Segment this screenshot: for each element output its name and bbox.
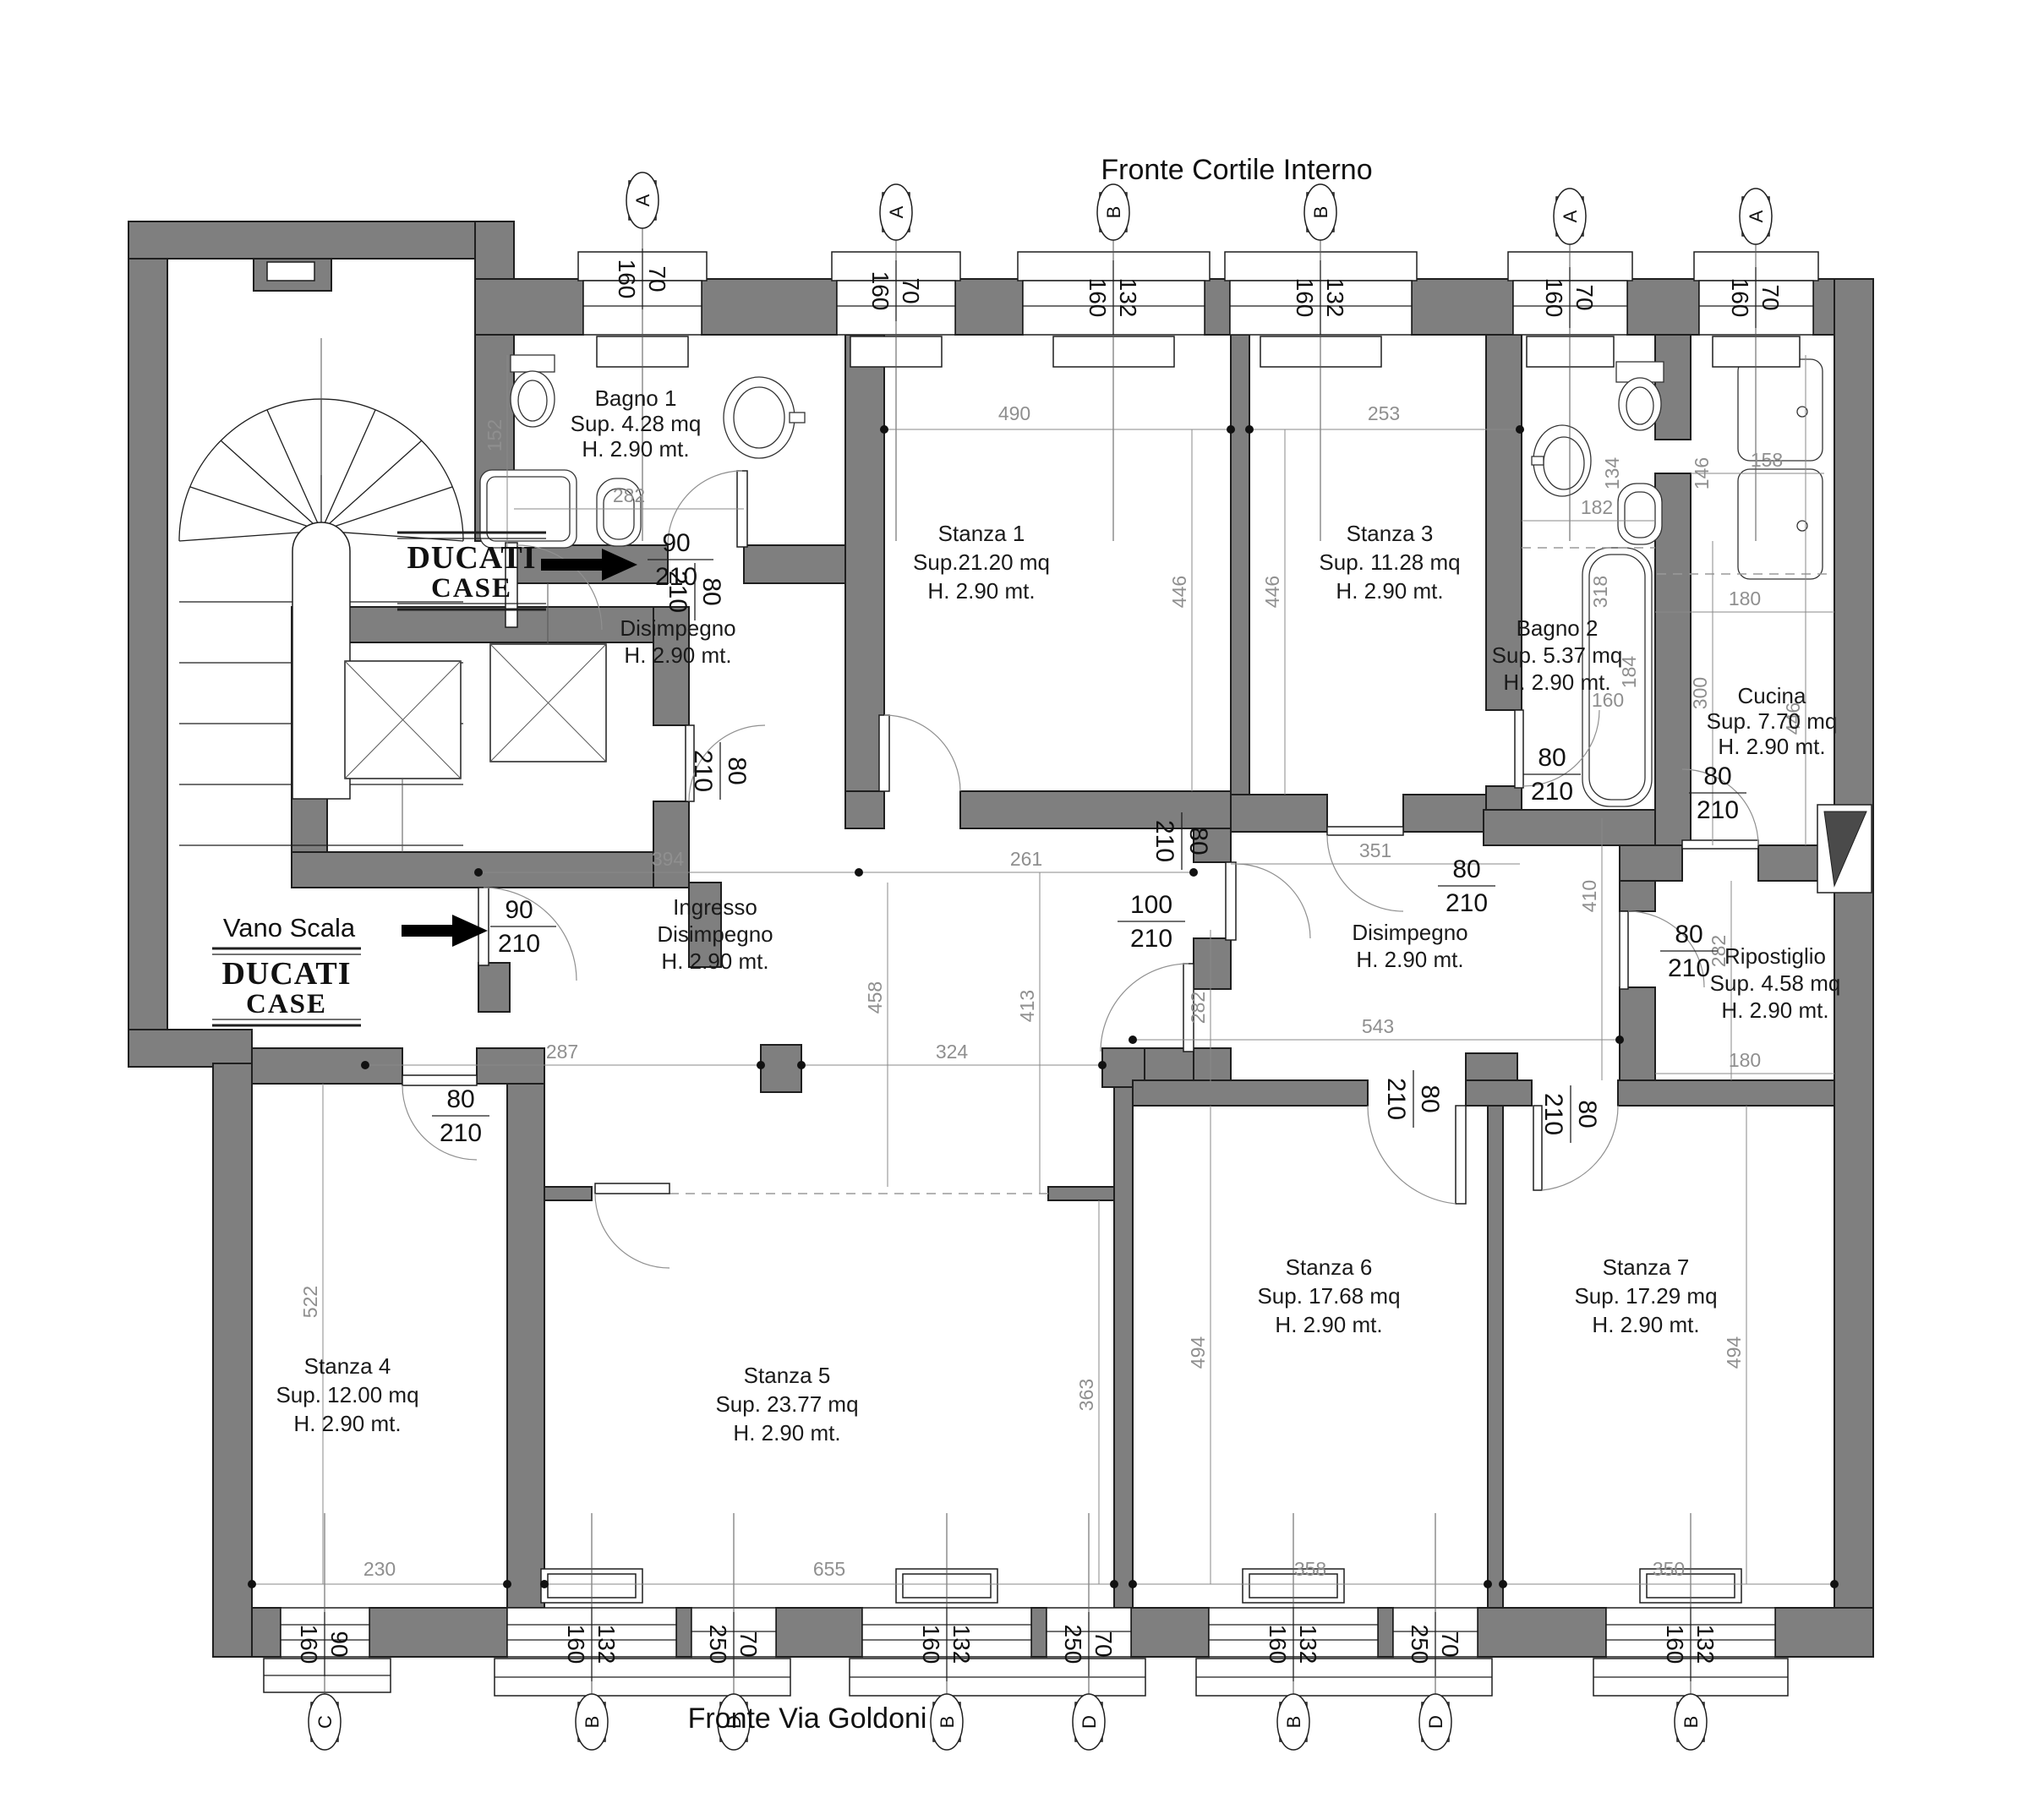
window-width: 132 [1295,1625,1321,1664]
arrow-icon [402,915,488,947]
dim-410: 410 [1578,880,1600,912]
svg-text:210: 210 [498,930,540,958]
svg-text:Sup. 4.28 mq: Sup. 4.28 mq [571,411,702,436]
dim-282-centro: 282 [1187,992,1209,1024]
ducati-case-logo-bottom: DUCATI CASE [212,948,361,1025]
window-height: 160 [918,1625,944,1664]
marker-letter: D [1425,1715,1446,1729]
marker-letter: A [1560,210,1581,222]
window-height: 160 [1292,278,1318,318]
svg-text:Ingresso: Ingresso [673,894,757,920]
svg-text:210: 210 [1382,1078,1410,1120]
window-width: 70 [898,277,924,303]
kitchen-sink-icon [1738,359,1823,461]
room-label-ripostiglio: Ripostiglio Sup. 4.58 mq H. 2.90 mt. [1710,943,1841,1023]
stairwell-label: Vano Scala [223,913,356,943]
svg-text:80: 80 [446,1085,474,1113]
svg-text:210: 210 [1539,1093,1567,1135]
window-height: 160 [563,1625,589,1664]
kitchen-sink-icon-2 [1738,469,1823,579]
svg-text:DUCATI: DUCATI [407,540,536,576]
window-width: 70 [1571,284,1598,310]
svg-text:210: 210 [1668,954,1710,982]
svg-text:Sup. 17.68 mq: Sup. 17.68 mq [1257,1283,1400,1309]
dim-158: 158 [1751,449,1783,471]
svg-text:H. 2.90 mt.: H. 2.90 mt. [1336,578,1443,604]
marker-letter: B [1283,1716,1304,1729]
svg-text:90: 90 [505,896,533,924]
window-height: 160 [1265,1625,1291,1664]
window-width: 70 [1090,1631,1117,1657]
svg-text:Bagno 2: Bagno 2 [1517,615,1599,641]
marker-bottom-D3: D 70250 [1407,1513,1463,1750]
svg-text:Stanza 7: Stanza 7 [1603,1254,1690,1280]
front-title-street: Fronte Via Goldoni [688,1702,927,1735]
svg-text:H. 2.90 mt.: H. 2.90 mt. [1718,734,1825,759]
svg-text:Sup. 4.58 mq: Sup. 4.58 mq [1710,970,1841,996]
svg-text:Stanza 3: Stanza 3 [1347,521,1434,546]
marker-letter: B [1681,1716,1702,1729]
svg-text:H. 2.90 mt.: H. 2.90 mt. [1503,669,1610,695]
room-label-stanza4: Stanza 4 Sup. 12.00 mq H. 2.90 mt. [276,1353,418,1436]
marker-letter: B [1103,206,1124,219]
svg-text:Sup. 7.70 mq: Sup. 7.70 mq [1707,708,1838,734]
svg-text:210: 210 [440,1119,482,1147]
dim-282-bagno1: 282 [613,484,645,506]
floor-plan-page: A 70160 A 70160 B 132160 B 132160 [0,0,2044,1798]
svg-text:H. 2.90 mt.: H. 2.90 mt. [1721,997,1828,1023]
dim-494-stanza7: 494 [1723,1336,1745,1369]
svg-text:Sup. 11.28 mq: Sup. 11.28 mq [1319,549,1460,575]
room-label-stanza6: Stanza 6 Sup. 17.68 mq H. 2.90 mt. [1257,1254,1400,1337]
door-label-100: 100210 [1118,891,1185,953]
svg-text:80: 80 [1573,1100,1601,1128]
bidet-icon [1618,484,1662,544]
dim-363: 363 [1075,1379,1097,1411]
door-label-stanza7: 80210 [1539,1085,1601,1143]
svg-text:H. 2.90 mt.: H. 2.90 mt. [582,436,689,462]
svg-text:H. 2.90 mt.: H. 2.90 mt. [661,948,768,974]
dim-134: 134 [1601,457,1623,490]
dim-446-stanza1: 446 [1168,576,1190,608]
ducati-case-logo-top: DUCATI CASE [397,533,546,609]
marker-letter: B [937,1716,958,1729]
dim-522: 522 [299,1286,321,1318]
door-label-disimpegno: 80210 [689,742,751,800]
dim-180-cucina: 180 [1729,587,1761,609]
svg-text:80: 80 [1538,744,1566,772]
dim-543: 543 [1362,1015,1394,1037]
svg-text:H. 2.90 mt.: H. 2.90 mt. [1275,1312,1382,1337]
svg-text:H. 2.90 mt.: H. 2.90 mt. [293,1411,401,1436]
svg-text:210: 210 [1446,889,1488,917]
window-height: 160 [867,271,894,311]
svg-text:H. 2.90 mt.: H. 2.90 mt. [927,578,1035,604]
sink-icon [724,377,805,458]
window-height: 160 [614,260,640,299]
dim-458: 458 [864,981,886,1014]
dim-182: 182 [1581,496,1613,518]
svg-text:80: 80 [697,577,725,605]
dim-180-ripostiglio: 180 [1729,1049,1761,1071]
room-label-cucina: Cucina Sup. 7.70 mq H. 2.90 mt. [1707,683,1838,759]
dim-490: 490 [998,402,1030,424]
svg-text:Sup. 5.37 mq: Sup. 5.37 mq [1492,642,1623,668]
dim-146: 146 [1691,457,1713,489]
svg-text:Disimpegno: Disimpegno [620,615,735,641]
marker-bottom-B4: B 132160 [1662,1513,1719,1750]
svg-text:Stanza 6: Stanza 6 [1286,1254,1373,1280]
walls [128,221,1873,1657]
window-height: 160 [1662,1625,1688,1664]
dim-351: 351 [1359,839,1391,861]
marker-bottom-B3: B 132160 [1265,1513,1321,1750]
svg-text:CASE: CASE [431,573,512,604]
svg-text:80: 80 [1675,921,1702,948]
svg-text:Sup. 12.00 mq: Sup. 12.00 mq [276,1382,418,1407]
window-height: 160 [296,1625,322,1664]
dim-230: 230 [363,1558,396,1580]
marker-letter: B [582,1716,603,1729]
toilet-icon [1616,362,1664,430]
floor-plan: A 70160 A 70160 B 132160 B 132160 [0,0,2044,1798]
dim-152: 152 [484,419,506,451]
dim-446-stanza3: 446 [1261,576,1283,608]
room-label-stanza3: Stanza 3 Sup. 11.28 mq H. 2.90 mt. [1319,521,1460,604]
toilet-icon [511,355,555,427]
svg-text:Sup. 23.77 mq: Sup. 23.77 mq [715,1391,858,1417]
marker-letter: B [1310,206,1331,219]
marker-bottom-D2: D 70250 [1060,1513,1117,1750]
window-width: 90 [326,1631,353,1657]
window-width: 132 [948,1625,975,1664]
svg-text:Stanza 1: Stanza 1 [938,521,1025,546]
window-width: 132 [1322,278,1348,318]
svg-text:80: 80 [1416,1085,1444,1112]
svg-text:210: 210 [1150,820,1178,862]
svg-text:210: 210 [1697,796,1739,824]
room-label-bagno1: Bagno 1 Sup. 4.28 mq H. 2.90 mt. [571,385,702,462]
svg-text:80: 80 [723,757,751,784]
svg-text:H. 2.90 mt.: H. 2.90 mt. [624,642,731,668]
door-label-stanza3: 80210 [1438,855,1495,917]
balcony-slabs [264,1659,1788,1696]
svg-text:Disimpegno: Disimpegno [1352,920,1467,945]
dim-318: 318 [1589,576,1611,608]
door-label-stanza6: 80210 [1382,1070,1444,1128]
svg-text:CASE: CASE [246,989,327,1019]
dim-300: 300 [1689,677,1711,709]
window-width: 132 [1115,278,1141,318]
svg-text:H. 2.90 mt.: H. 2.90 mt. [1356,947,1463,972]
window-width: 70 [1757,284,1784,310]
svg-text:210: 210 [1130,925,1172,953]
svg-text:90: 90 [662,529,690,557]
door-label-bagno2: 80210 [1523,744,1581,806]
door-label-stanza4: 80210 [432,1085,489,1147]
svg-text:DUCATI: DUCATI [221,956,351,992]
svg-text:210: 210 [689,750,717,792]
door-label-entrata-scala: 90210 [490,896,556,958]
dim-494-stanza6: 494 [1187,1336,1209,1369]
dim-287: 287 [546,1041,578,1063]
svg-text:Bagno 1: Bagno 1 [595,385,677,411]
svg-text:210: 210 [664,571,691,613]
svg-text:Sup.21.20 mq: Sup.21.20 mq [913,549,1050,575]
window-width: 70 [1437,1631,1463,1657]
door-label-cucina: 80210 [1689,762,1746,824]
marker-bottom-B1: B 132160 [563,1513,620,1750]
svg-text:80: 80 [1452,855,1480,883]
marker-letter: D [1079,1715,1100,1729]
marker-letter: A [632,194,653,206]
room-label-ingresso: Ingresso Disimpegno H. 2.90 mt. [657,894,773,974]
dim-350: 350 [1653,1558,1685,1580]
window-width: 132 [1692,1625,1719,1664]
room-label-stanza1: Stanza 1 Sup.21.20 mq H. 2.90 mt. [913,521,1050,604]
dim-655: 655 [813,1558,845,1580]
dim-358: 358 [1294,1558,1326,1580]
marker-bottom-C: C 90160 [296,1513,353,1750]
svg-text:Cucina: Cucina [1738,683,1806,708]
svg-text:Stanza 5: Stanza 5 [744,1363,831,1388]
svg-text:80: 80 [1184,827,1212,855]
dim-261: 261 [1010,848,1042,870]
sink-icon [1532,425,1591,496]
room-label-disimpegno-est: Disimpegno H. 2.90 mt. [1352,920,1467,972]
svg-text:80: 80 [1703,762,1731,790]
window-height: 160 [1085,278,1111,318]
window-height: 160 [1541,278,1567,318]
svg-text:Stanza 4: Stanza 4 [304,1353,391,1379]
window-width: 70 [644,265,670,292]
marker-letter: A [1746,210,1767,222]
marker-letter: A [886,205,907,218]
svg-text:210: 210 [1531,778,1573,806]
front-title-courtyard: Fronte Cortile Interno [1101,154,1372,186]
dim-253: 253 [1368,402,1400,424]
svg-text:H. 2.90 mt.: H. 2.90 mt. [1592,1312,1699,1337]
marker-letter: C [314,1715,336,1729]
svg-text:Sup. 17.29 mq: Sup. 17.29 mq [1574,1283,1717,1309]
dim-324: 324 [936,1041,969,1063]
door-label-bagno1: 80210 [664,563,725,620]
dim-394: 394 [652,848,685,870]
window-width: 132 [593,1625,620,1664]
svg-text:100: 100 [1130,891,1172,919]
dim-413: 413 [1016,990,1038,1022]
room-label-stanza7: Stanza 7 Sup. 17.29 mq H. 2.90 mt. [1574,1254,1717,1337]
window-width: 70 [735,1631,762,1657]
svg-text:H. 2.90 mt.: H. 2.90 mt. [733,1420,840,1446]
window-height: 250 [705,1625,731,1664]
svg-text:Disimpegno: Disimpegno [657,921,773,947]
svg-text:Ripostiglio: Ripostiglio [1724,943,1826,969]
window-height: 250 [1407,1625,1433,1664]
room-label-stanza5: Stanza 5 Sup. 23.77 mq H. 2.90 mt. [715,1363,858,1446]
window-height: 250 [1060,1625,1086,1664]
window-height: 160 [1727,278,1753,318]
